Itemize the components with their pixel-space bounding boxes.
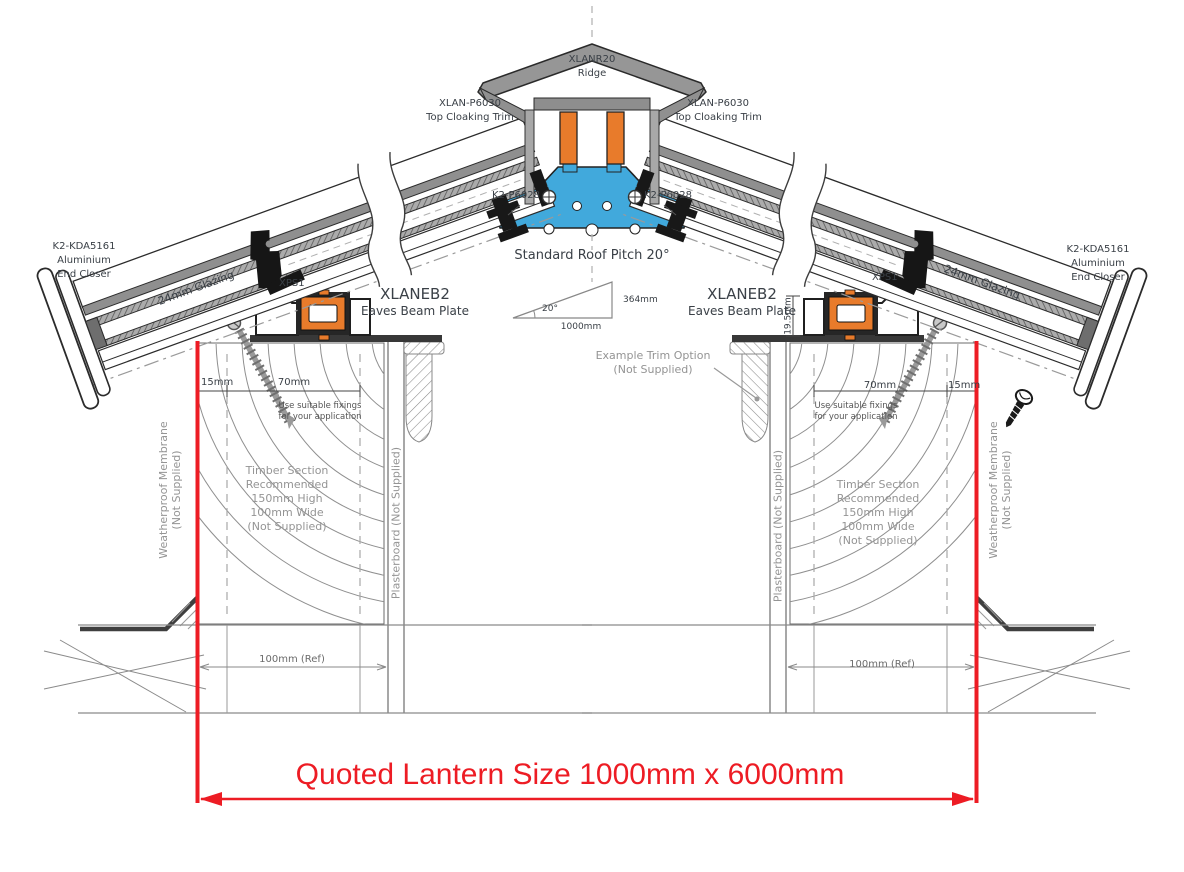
xps-label-left: XPS1 — [279, 277, 305, 290]
timber-note-left-3: 150mm High — [251, 492, 322, 505]
xps-label-right: XPS1 — [872, 271, 898, 284]
trim-option-line1: Example Trim Option — [596, 349, 711, 362]
timber-note-right-3: 150mm High — [842, 506, 913, 519]
membrane-line1: Weatherproof Membrane — [157, 421, 170, 558]
cloaking-trim-code-right: XLAN-P6030 — [687, 97, 749, 110]
quoted-size-label: Quoted Lantern Size 1000mm x 6000mm — [296, 758, 845, 792]
plasterboard-label-right: Plasterboard (Not Supplied) — [772, 450, 785, 602]
end-closer-code-right: K2-KDA5161 — [1067, 243, 1130, 256]
timber-note-left-1: Timber Section — [246, 464, 329, 477]
timber-note-left-4: 100mm Wide — [250, 506, 323, 519]
cloaking-trim-name-right: Top Cloaking Trim — [674, 111, 762, 124]
eaves-beam-name-right: Eaves Beam Plate — [688, 305, 796, 318]
fixings-note-right-1: Use suitable fixings — [815, 401, 898, 412]
end-closer-line2-right: Aluminium — [1071, 257, 1125, 270]
timber-note-left-2: Recommended — [246, 478, 329, 491]
glazing-bar-fixing-left: K2-P6028 — [492, 189, 540, 202]
timber-note-right-1: Timber Section — [837, 478, 920, 491]
eaves-beam-code-left: XLANEB2 — [380, 288, 450, 301]
timber-note-right-2: Recommended — [837, 492, 920, 505]
membrane-label-left: Weatherproof Membrane (Not Supplied) — [157, 421, 183, 558]
dim-70-right: 70mm — [864, 379, 896, 392]
pitch-angle: 20° — [542, 303, 558, 316]
end-closer-code-left: K2-KDA5161 — [53, 240, 116, 253]
plasterboard-label-left: Plasterboard (Not Supplied) — [390, 447, 403, 599]
membrane-line1: Weatherproof Membrane — [987, 421, 1000, 558]
dim-19-5: 19.5mm — [783, 297, 796, 335]
end-closer-line3-right: End Closer — [1071, 271, 1125, 284]
cloaking-trim-name-left: Top Cloaking Trim — [426, 111, 514, 124]
membrane-line2: (Not Supplied) — [170, 421, 183, 558]
timber-note-left-5: (Not Supplied) — [247, 520, 326, 533]
dim-70-left: 70mm — [278, 376, 310, 389]
membrane-label-right: Weatherproof Membrane (Not Supplied) — [987, 421, 1013, 558]
eaves-beam-code-right: XLANEB2 — [707, 288, 777, 301]
ridge-code-label: XLANR20 — [569, 53, 616, 66]
timber-note-right-5: (Not Supplied) — [838, 534, 917, 547]
dim-100-ref-right: 100mm (Ref) — [849, 658, 915, 671]
fixings-note-left-2: for your application — [278, 412, 361, 423]
dim-100-ref-left: 100mm (Ref) — [259, 653, 325, 666]
pitch-triangle — [513, 282, 612, 318]
glazing-bar-fixing-right: K2-P6028 — [644, 189, 692, 202]
end-closer-line3-left: End Closer — [57, 268, 111, 281]
ridge-name-label: Ridge — [578, 67, 607, 80]
fixings-note-left-1: Use suitable fixings — [279, 401, 362, 412]
upstand-right — [448, 44, 1130, 713]
trim-option-line2: (Not Supplied) — [613, 363, 692, 376]
lantern-section-diagram: XLANR20 Ridge XLAN-P6030 Top Cloaking Tr… — [0, 0, 1184, 872]
fixings-note-right-2: for your application — [814, 412, 897, 423]
eaves-beam-name-left: Eaves Beam Plate — [361, 305, 469, 318]
pitch-run: 1000mm — [561, 321, 601, 334]
pitch-rise: 364mm — [623, 294, 658, 307]
cloaking-trim-code-left: XLAN-P6030 — [439, 97, 501, 110]
membrane-line2: (Not Supplied) — [1000, 421, 1013, 558]
end-closer-line2-left: Aluminium — [57, 254, 111, 267]
dim-15-right: 15mm — [948, 379, 980, 392]
timber-note-right-4: 100mm Wide — [841, 520, 914, 533]
pitch-title: Standard Roof Pitch 20° — [514, 249, 669, 262]
dim-15-left: 15mm — [201, 376, 233, 389]
